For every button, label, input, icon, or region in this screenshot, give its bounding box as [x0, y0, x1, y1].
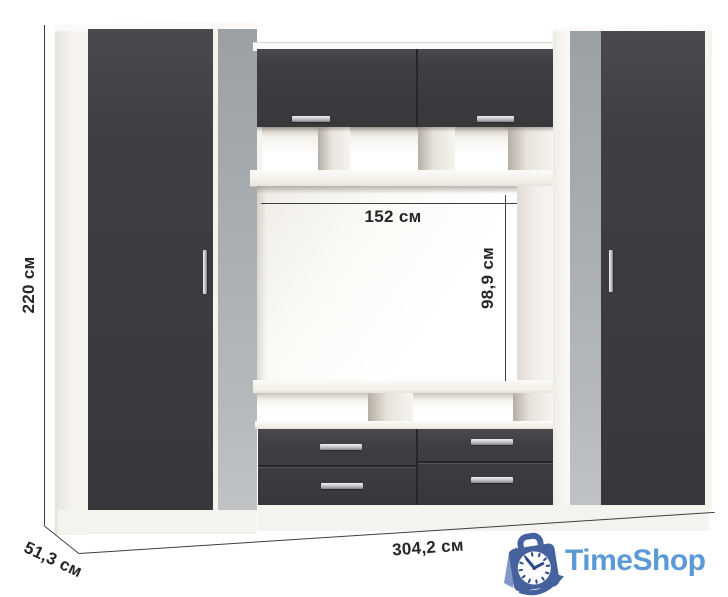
left-wardrobe-door-handle: [203, 250, 207, 294]
drawer-column-gap: [416, 429, 418, 505]
height-dimension-label: 220 см: [19, 235, 39, 335]
upper-shelf-opening: [262, 127, 318, 170]
left-wardrobe-side-panel: [55, 28, 88, 535]
drawer-handle: [471, 439, 513, 445]
left-wardrobe-mirror-strip: [218, 29, 257, 511]
left-wardrobe-door: [88, 29, 213, 512]
niche-width-dimension-label: 152 см: [343, 207, 443, 227]
top-cabinet-door-gap: [416, 49, 418, 127]
niche-right-wall: [517, 186, 553, 380]
niche-width-dimension-line: [261, 203, 517, 204]
total-width-dimension-label: 304,2 см: [367, 534, 488, 562]
height-dimension-line: [44, 25, 45, 525]
upper-shelf-end-pillar: [508, 127, 553, 170]
left-wardrobe-plinth: [58, 510, 257, 534]
right-wardrobe-right-edge: [705, 31, 712, 509]
stand-divider: [368, 393, 413, 421]
right-wardrobe-mirror-strip: [570, 31, 601, 510]
right-wardrobe-door-handle: [609, 250, 613, 292]
clock-shopping-bag-icon: [500, 528, 568, 596]
long-shelf: [250, 170, 553, 187]
right-wardrobe-side-panel: [553, 31, 570, 509]
niche-height-dimension-label: 98,9 см: [478, 228, 498, 328]
product-image: 220 см 152 см 98,9 см 304,2 см 51,3 см: [0, 0, 728, 597]
niche-left-shadow: [257, 186, 267, 380]
brand-name: TimeShop: [565, 544, 705, 578]
drawer-row-gap: [418, 461, 553, 463]
drawer-handle: [471, 477, 513, 483]
top-cabinet-left-handle: [292, 116, 330, 122]
upper-shelf-opening: [455, 127, 508, 170]
niche-bottom-shelf: [253, 380, 555, 394]
timeshop-logo: TimeShop: [500, 528, 728, 596]
upper-shelf-opening: [350, 127, 418, 170]
upper-shelf-divider: [318, 127, 350, 170]
drawer-handle: [321, 483, 363, 489]
top-cabinet-right-handle: [477, 116, 514, 122]
drawer-row-gap: [258, 465, 416, 467]
niche-top-shadow: [257, 186, 517, 194]
cabinet-shadow: [257, 127, 553, 132]
drawer-handle: [320, 444, 362, 450]
stand-opening: [413, 393, 513, 421]
stand-opening: [257, 393, 368, 421]
niche-height-dimension-line: [505, 195, 506, 381]
right-wardrobe-door: [601, 31, 705, 509]
depth-dimension-label: 51,3 см: [3, 530, 102, 590]
stand-end-pillar: [513, 393, 553, 421]
upper-shelf-divider: [418, 127, 455, 170]
